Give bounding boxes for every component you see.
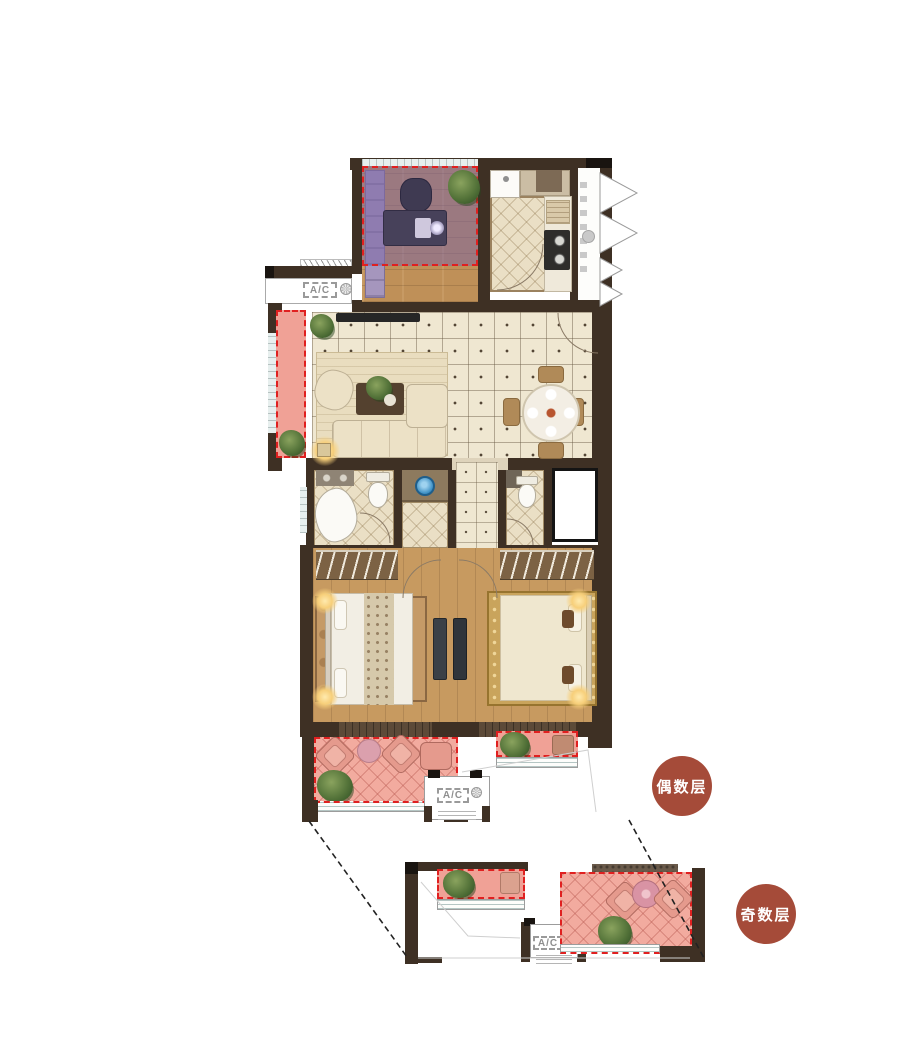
kitchen-floor: [490, 196, 546, 292]
study-chair: [400, 178, 432, 212]
basin-niche-floor: [402, 502, 448, 548]
ac-label-bottom: A/C: [437, 788, 469, 803]
ac-label-small: A/C: [533, 936, 563, 950]
dining-chair-left: [503, 398, 520, 426]
wall-wc-void: [544, 470, 552, 548]
study-desk-pad: [415, 218, 431, 238]
bed-right-cushion-2: [562, 666, 574, 684]
ac-bottom-nub-1: [428, 770, 440, 778]
bath-window: [300, 487, 307, 533]
study-desk-lamp: [430, 221, 444, 235]
odd-floor-badge: 奇数层: [736, 884, 796, 944]
s-terrace-railing: [560, 944, 660, 954]
floor-plan-canvas: A/C: [0, 0, 900, 1049]
wall-lamp-glow-2: [312, 684, 338, 710]
living-plant: [310, 314, 334, 338]
basin-bowl: [415, 476, 435, 496]
hallway-floor: [456, 462, 498, 548]
wall-study-left: [352, 158, 362, 274]
s-planter-plant: [443, 870, 475, 898]
toilet1-bowl: [368, 482, 388, 508]
wall-hall-wc: [498, 470, 506, 548]
wardrobe-right: [500, 550, 594, 580]
terrace-ottoman: [420, 742, 452, 770]
wall-lamp-glow-3: [566, 588, 592, 614]
entry-knob: [582, 230, 595, 243]
odd-floor-badge-text: 奇数层: [740, 904, 791, 925]
ac-bottom-sidewall-1: [424, 806, 432, 822]
study-potted-plant: [448, 170, 480, 204]
kitchen-faucet: [503, 176, 509, 182]
s-ac-sidewall-1: [521, 922, 530, 962]
bed-left-runner: [364, 593, 394, 705]
wall-bath-niche: [394, 470, 402, 548]
wall-band-left: [306, 470, 314, 548]
wall-planter-right-end: [588, 722, 612, 748]
terrace-chair-2-cushion: [388, 741, 413, 766]
toilet2-bowl: [518, 484, 536, 508]
balcony-left-plant: [279, 430, 305, 456]
void-room: [552, 468, 598, 542]
floor-lamp: [317, 443, 331, 457]
kitchen-sink: [490, 170, 520, 198]
s-ac-steps: [536, 954, 572, 964]
dining-chair-top: [538, 366, 564, 383]
bed-right-cushion-1: [562, 610, 574, 628]
s-planter-louver: [437, 899, 525, 910]
living-tv: [336, 313, 420, 322]
terrace-chair-1-cushion: [322, 743, 347, 768]
wall-living-right: [592, 300, 612, 470]
dining-table: [522, 384, 580, 442]
kitchen-stove: [544, 230, 570, 270]
wall-entry-right: [600, 168, 612, 304]
wall-lamp-glow-4: [566, 684, 592, 710]
balcony-left-window: [268, 333, 276, 435]
planter-right-cushion: [552, 735, 574, 755]
planter-right-plant: [500, 732, 530, 758]
wardrobe-left: [316, 550, 398, 580]
wall-niche-hall: [448, 470, 456, 548]
kitchen-cabinet-dark: [536, 170, 562, 192]
living-sofa-chaise: [406, 384, 448, 428]
ac-label-bottom-text: A/C: [443, 790, 463, 801]
terrace-round-table: [357, 739, 381, 763]
wall-living-bottom: [306, 458, 592, 470]
ac-bottom-sidewall-2: [482, 806, 490, 822]
coffee-table-tray: [384, 394, 396, 406]
s-planter-cushion: [500, 872, 520, 894]
wall-study-kitchen: [478, 158, 490, 304]
dining-chair-bottom: [538, 442, 564, 459]
tv-panel-left-bedroom: [433, 618, 447, 680]
tv-panel-right-bedroom: [453, 618, 467, 680]
ac-bottom-nub-2: [470, 770, 482, 778]
ac-fan-icon: [340, 283, 352, 295]
ac-bottom-steps: [438, 808, 476, 820]
ac-label-top: A/C: [303, 282, 337, 298]
wall-band-right: [598, 470, 612, 548]
s-wall-bottom-right: [660, 946, 705, 962]
wall-lamp-glow-1: [312, 588, 338, 614]
bath-vanity: [316, 470, 354, 486]
wall-bedroom-left: [300, 545, 313, 737]
planter-right-louver: [496, 757, 578, 768]
lintel-texture-left: [338, 722, 432, 737]
ac-label-small-text: A/C: [538, 938, 558, 949]
ac-fan-icon-bottom: [471, 787, 482, 798]
wall-terrace-corner-left: [302, 800, 318, 822]
kitchen-appliance: [546, 200, 570, 224]
wall-ac-top: [265, 266, 352, 278]
toilet1-tank: [366, 472, 390, 482]
s-terrace-chair-2-cushion: [660, 886, 685, 911]
terrace-plant: [317, 770, 353, 802]
even-floor-badge-text: 偶数层: [656, 776, 707, 797]
ac-label-top-text: A/C: [310, 285, 330, 296]
even-floor-badge: 偶数层: [652, 756, 712, 816]
entry-hooks: [580, 180, 587, 272]
